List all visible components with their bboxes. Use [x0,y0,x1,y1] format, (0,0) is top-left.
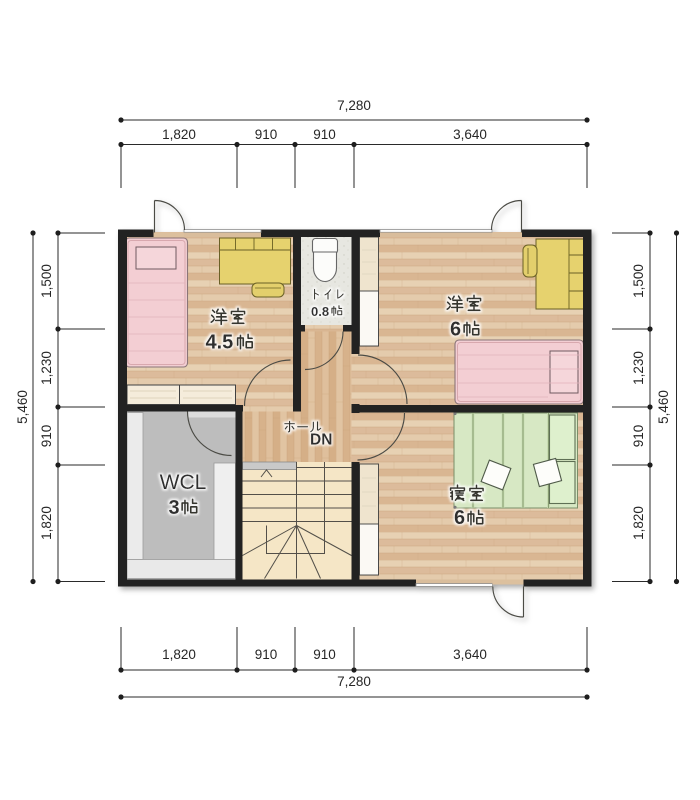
svg-text:910: 910 [255,127,278,142]
svg-text:7,280: 7,280 [337,98,371,113]
svg-text:1,820: 1,820 [39,506,54,540]
svg-text:5,460: 5,460 [656,390,671,424]
svg-text:910: 910 [313,127,336,142]
svg-text:1,230: 1,230 [39,351,54,385]
svg-text:7,280: 7,280 [337,674,371,689]
svg-text:4.5: 4.5 [206,332,234,354]
svg-text:1,500: 1,500 [631,264,646,298]
svg-text:0.8: 0.8 [311,304,329,319]
svg-text:1,230: 1,230 [631,351,646,385]
svg-text:910: 910 [313,647,336,662]
svg-text:1,820: 1,820 [162,127,196,142]
svg-text:910: 910 [631,425,646,448]
svg-text:1,820: 1,820 [162,647,196,662]
svg-text:6: 6 [454,507,465,529]
svg-text:5,460: 5,460 [15,390,30,424]
svg-text:1,500: 1,500 [39,264,54,298]
svg-text:910: 910 [39,425,54,448]
svg-text:6: 6 [450,319,461,341]
svg-text:3: 3 [169,497,180,519]
svg-text:DN: DN [310,432,332,449]
svg-text:3,640: 3,640 [453,647,487,662]
svg-text:WCL: WCL [160,471,207,494]
svg-text:910: 910 [255,647,278,662]
svg-text:3,640: 3,640 [453,127,487,142]
svg-text:1,820: 1,820 [631,506,646,540]
